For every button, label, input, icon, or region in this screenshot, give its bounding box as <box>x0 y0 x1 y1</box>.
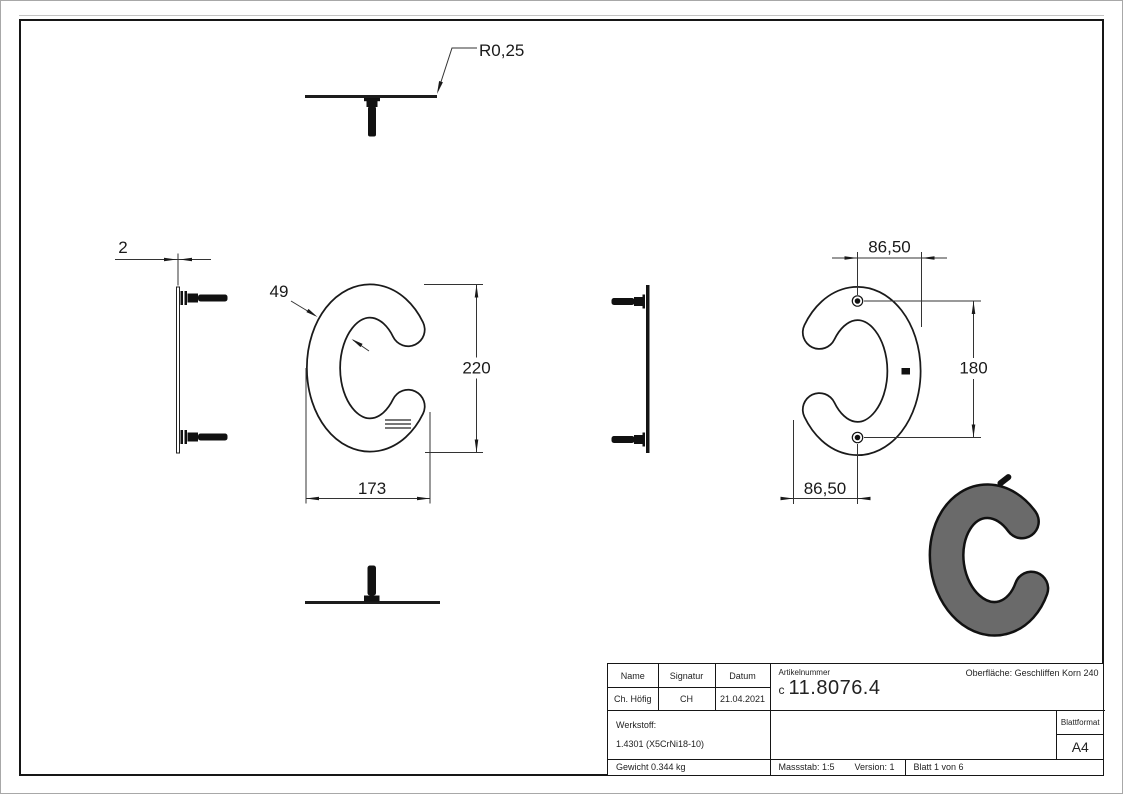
dim-height-label: 220 <box>462 359 490 378</box>
werkstoff-value: 1.4301 (X5CrNi18-10) <box>616 739 704 749</box>
artikelnummer-prefix: c <box>779 683 785 697</box>
stud-position-bottom <box>852 432 862 442</box>
isometric-view <box>939 473 1035 625</box>
empty-cell <box>771 711 1057 760</box>
header-name-cell: Name <box>608 664 659 688</box>
dim-hole-spacing-label: 180 <box>959 359 987 378</box>
dim-radius-label: R0,25 <box>479 41 524 60</box>
artikelnummer-value: 11.8076.4 <box>789 677 881 700</box>
value-signatur-cell: CH <box>659 688 716 711</box>
radius-leader-arrow <box>437 81 443 94</box>
massstab-text: Massstab: 1:5 <box>779 762 835 772</box>
value-name-cell: Ch. Höfig <box>608 688 659 711</box>
back-view: 86,50 180 86,50 <box>781 238 988 505</box>
oberflaeche-text: Oberfläche: Geschliffen Korn 240 <box>966 664 1105 678</box>
title-block: Name Signatur Datum Ch. Höfig CH 21.04.2… <box>607 663 1104 776</box>
etch-mark <box>902 368 911 375</box>
massstab-cell: Massstab: 1:5 Version: 1 <box>771 760 906 776</box>
header-signatur-cell: Signatur <box>659 664 716 688</box>
artikelnummer-label: Artikelnummer <box>779 668 966 677</box>
plate-side-edge <box>177 287 180 453</box>
version-text: Version: 1 <box>855 762 895 772</box>
weld-stud-right-top <box>612 295 646 309</box>
weld-stud-right-bottom <box>612 433 646 447</box>
stud-position-top <box>852 296 862 306</box>
weld-stud-left-top <box>181 291 228 305</box>
gewicht-cell: Gewicht 0.344 kg <box>608 760 771 776</box>
radius-leader-line <box>438 48 477 91</box>
bottom-view <box>305 566 440 605</box>
right-side-view <box>612 285 650 453</box>
blattformat-value-cell: A4 <box>1057 735 1105 760</box>
werkstoff-cell: Werkstoff: 1.4301 (X5CrNi18-10) <box>608 711 771 760</box>
blatt-cell: Blatt 1 von 6 <box>906 760 1105 776</box>
artikelnummer-cell: Artikelnummer c 11.8076.4 Oberfläche: Ge… <box>771 664 1105 711</box>
weld-stud-left-bottom <box>181 430 228 444</box>
plate-top-edge <box>305 95 437 98</box>
plate-side-edge-right <box>646 285 650 453</box>
letter-c-face <box>323 301 408 435</box>
dim-width-label: 173 <box>358 479 386 498</box>
dim-thickness-label: 2 <box>118 238 127 257</box>
value-datum-cell: 21.04.2021 <box>716 688 771 711</box>
dim-stroke-width-label: 49 <box>270 282 289 301</box>
werkstoff-label: Werkstoff: <box>616 720 656 730</box>
weld-stud-bottom-view <box>364 566 380 602</box>
letter-c-back-face <box>819 304 904 439</box>
front-view: 49 220 173 <box>270 282 491 504</box>
dim-hole-offset-bottom-label: 86,50 <box>804 479 847 498</box>
top-view: R0,25 <box>305 41 524 137</box>
blattformat-label-cell: Blattformat <box>1057 711 1105 735</box>
weld-stud-top-view <box>364 98 380 137</box>
header-datum-cell: Datum <box>716 664 771 688</box>
left-side-view: 2 <box>115 238 228 453</box>
iso-letter-fill <box>939 497 1035 625</box>
dim-hole-offset-top-label: 86,50 <box>868 238 911 257</box>
